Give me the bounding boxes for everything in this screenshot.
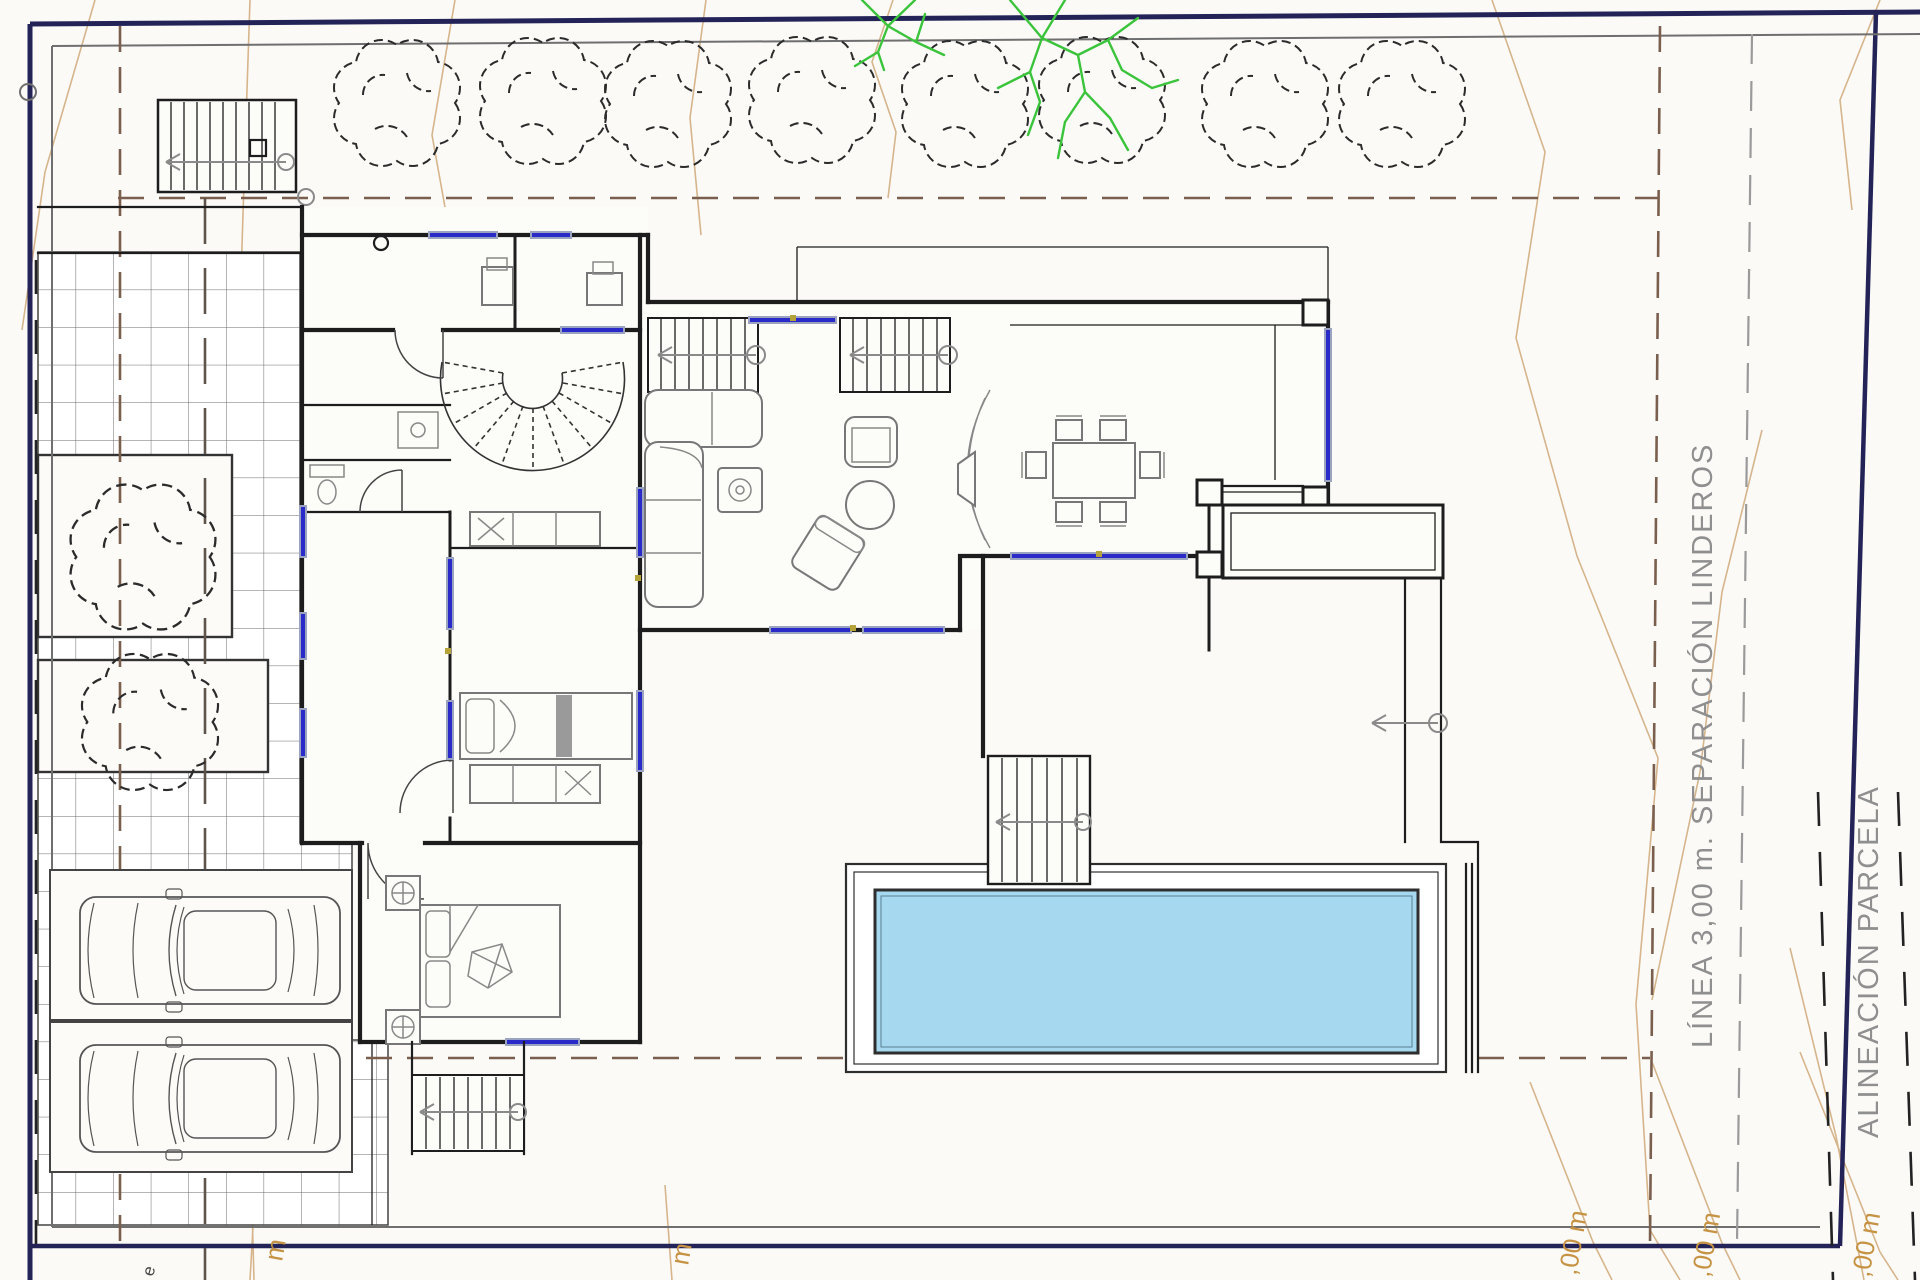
site-plan-drawing: LÍNEA 3,00 m. SEPARACIÓN LINDEROS ALINEA…: [0, 0, 1920, 1280]
window-marker: [769, 626, 852, 634]
nightstand: [386, 876, 420, 910]
double-bed: [420, 905, 560, 1017]
swimming-pool: [875, 890, 1418, 1053]
car-icon: [80, 1037, 340, 1160]
contour-elevation-fragment: m: [258, 1236, 291, 1263]
kitchen-counter: [1223, 505, 1443, 578]
wardrobe: [470, 765, 600, 803]
window-marker: [636, 690, 644, 772]
window-marker: [446, 700, 454, 760]
pergola-walkway: [1372, 578, 1447, 842]
window-marker: [530, 231, 572, 239]
tree-icon: [480, 38, 606, 164]
single-bed: [460, 693, 632, 759]
green-tree-icon: [855, 0, 944, 70]
window-marker: [862, 626, 945, 634]
separation-line-label: LÍNEA 3,00 m. SEPARACIÓN LINDEROS: [1686, 443, 1719, 1048]
survey-mark-line: [1898, 792, 1915, 1280]
nightstand: [386, 1010, 420, 1044]
window-marker: [560, 326, 625, 334]
window-marker: [299, 612, 307, 660]
dining-chair: [1100, 502, 1126, 522]
dining-chair: [1056, 420, 1082, 440]
planting-bed: [38, 455, 232, 637]
dining-chair: [1100, 420, 1126, 440]
dining-chair: [1056, 502, 1082, 522]
exterior-staircase: [988, 756, 1091, 884]
window-marker: [1324, 328, 1332, 482]
side-table: [718, 468, 762, 512]
window-marker: [505, 1038, 580, 1046]
tree-icon: [1202, 41, 1328, 167]
ottoman: [845, 417, 897, 467]
window-marker: [428, 231, 498, 239]
window-marker: [636, 487, 644, 558]
straight-staircase: [648, 318, 765, 392]
contour-elevation-label: ,00 m: [1685, 1210, 1726, 1279]
window-marker: [299, 708, 307, 758]
car-icon: [80, 889, 340, 1012]
coffee-table: [846, 481, 894, 529]
dining-chair: [1140, 452, 1160, 478]
entry-staircase: [38, 100, 302, 253]
straight-staircase: [840, 318, 957, 392]
parking-area: [50, 870, 352, 1172]
window-marker: [299, 505, 307, 558]
planting-bed: [38, 660, 268, 772]
wardrobe: [470, 512, 600, 546]
window-marker: [446, 557, 454, 630]
tree-icon: [1339, 41, 1465, 167]
green-tree-icon: [998, 0, 1178, 158]
tree-icon: [1039, 37, 1165, 163]
contour-elevation-label: ,00 m: [1552, 1208, 1593, 1277]
tree-icon: [605, 41, 731, 167]
contour-elevation-label: ,00 m: [1845, 1210, 1886, 1279]
dining-chair: [1026, 452, 1046, 478]
tree-icon: [749, 37, 875, 163]
pool-terrace: [846, 756, 1478, 1072]
floor-plan-canvas: LÍNEA 3,00 m. SEPARACIÓN LINDEROS ALINEA…: [0, 0, 1920, 1280]
tree-icon: [902, 41, 1028, 167]
dining-table: [1053, 443, 1135, 498]
tree-icon: [334, 40, 460, 166]
small-annotation-fragment: e: [139, 1264, 160, 1278]
survey-mark-line: [1818, 792, 1833, 1280]
parcel-alignment-label: ALINEACIÓN PARCELA: [1852, 785, 1885, 1138]
